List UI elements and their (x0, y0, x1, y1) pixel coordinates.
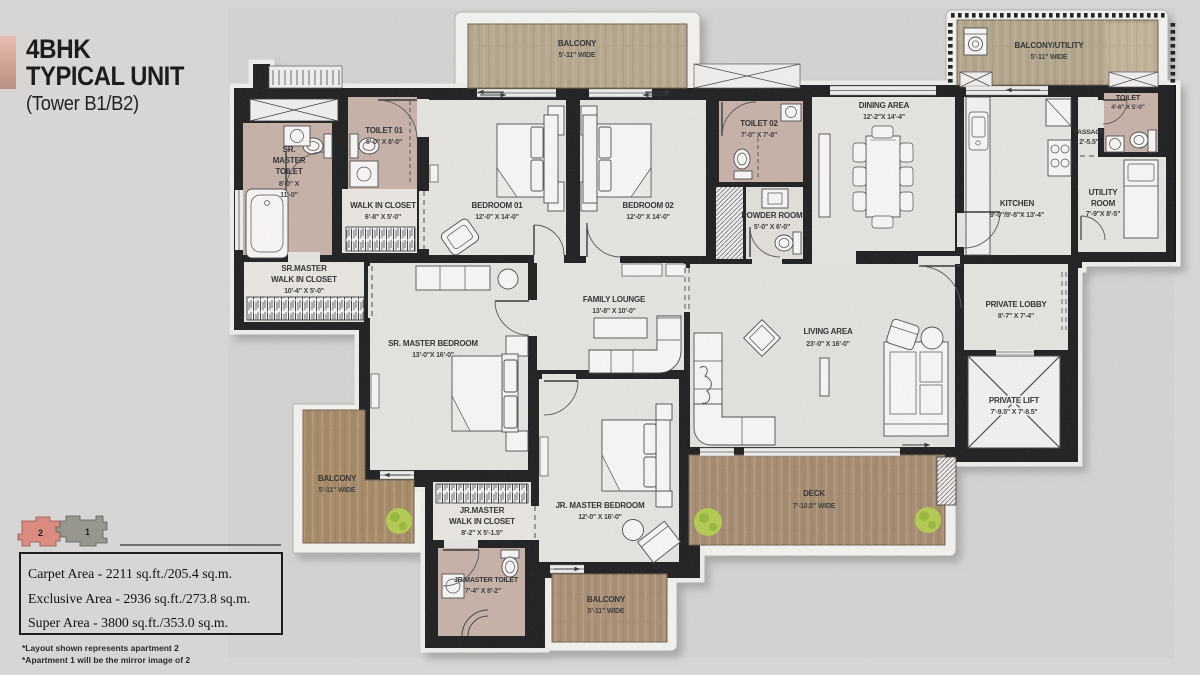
svg-text:TYPICAL UNIT: TYPICAL UNIT (26, 62, 185, 92)
svg-text:4BHK: 4BHK (26, 35, 91, 64)
svg-text:2: 2 (38, 528, 43, 538)
svg-text:*Apartment 1 will be the mirro: *Apartment 1 will be the mirror image of… (22, 655, 190, 665)
svg-text:*Layout shown represents apart: *Layout shown represents apartment 2 (22, 643, 179, 653)
svg-text:Exclusive Area - 2936 sq.ft./2: Exclusive Area - 2936 sq.ft./273.8 sq.m. (28, 591, 250, 606)
svg-text:Super Area - 3800 sq.ft./353.0: Super Area - 3800 sq.ft./353.0 sq.m. (28, 615, 228, 630)
svg-text:Carpet Area - 2211 sq.ft./205.: Carpet Area - 2211 sq.ft./205.4 sq.m. (28, 566, 232, 581)
svg-text:1: 1 (85, 527, 90, 537)
svg-text:(Tower B1/B2): (Tower B1/B2) (26, 93, 139, 115)
